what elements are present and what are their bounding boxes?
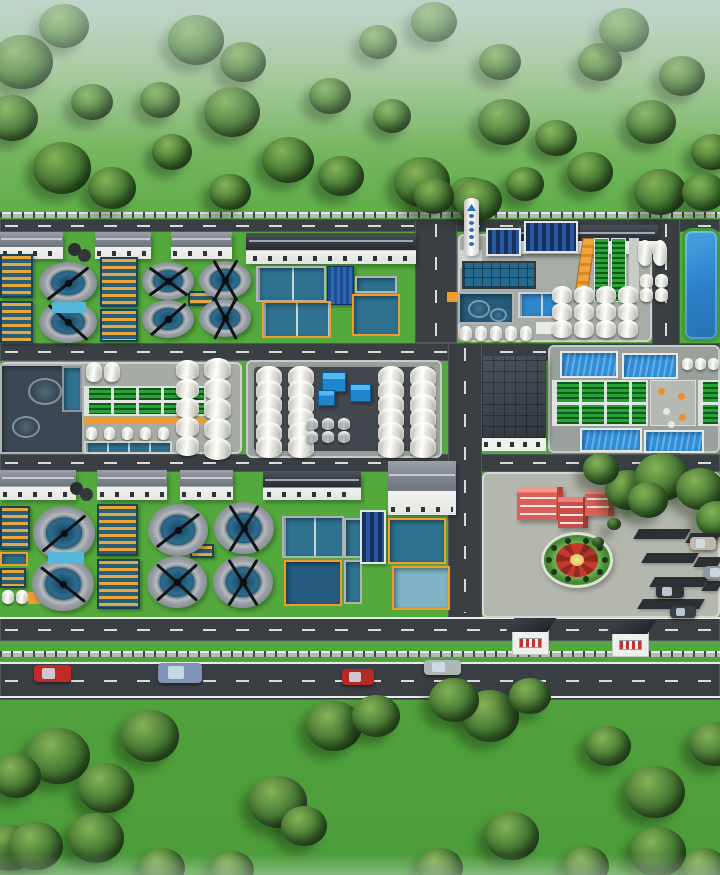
parked-car bbox=[690, 537, 716, 550]
tree bbox=[585, 726, 631, 766]
tree bbox=[39, 4, 89, 48]
structure bbox=[78, 249, 91, 262]
tree bbox=[628, 482, 668, 517]
storage-tank bbox=[410, 436, 436, 458]
storage-tank bbox=[204, 378, 231, 400]
parking-strip bbox=[633, 529, 691, 539]
tank-connector-channel bbox=[48, 552, 84, 564]
storage-tank bbox=[695, 358, 706, 370]
water-basin bbox=[0, 552, 28, 566]
parked-car bbox=[656, 585, 684, 598]
tree bbox=[210, 851, 254, 875]
storage-tank bbox=[655, 288, 668, 302]
tree bbox=[71, 84, 113, 121]
plant-building bbox=[97, 470, 167, 500]
storage-tank bbox=[475, 326, 487, 341]
storage-tank bbox=[204, 358, 231, 380]
clarifier-tank bbox=[142, 300, 194, 338]
clarifier-tank bbox=[147, 556, 207, 608]
gatehouse bbox=[512, 630, 549, 655]
treatment-plant-aerial-scene bbox=[0, 0, 720, 875]
tree bbox=[634, 169, 686, 215]
storage-tank bbox=[158, 427, 169, 440]
road-edge-line bbox=[0, 662, 720, 664]
car bbox=[158, 663, 202, 683]
storage-tank bbox=[638, 240, 652, 266]
tree bbox=[78, 763, 134, 812]
equipment-module bbox=[0, 568, 26, 588]
tree bbox=[414, 178, 454, 213]
tree bbox=[479, 44, 521, 81]
tree bbox=[140, 82, 180, 117]
storage-tank bbox=[176, 417, 199, 437]
plant-building bbox=[246, 233, 416, 264]
storage-tank bbox=[16, 590, 28, 604]
solar-panel-building bbox=[486, 228, 521, 256]
clarifier-tank bbox=[142, 262, 194, 300]
tree bbox=[535, 120, 577, 157]
membrane-basin bbox=[644, 430, 704, 453]
tree bbox=[485, 812, 539, 860]
blue-container bbox=[322, 372, 346, 392]
storage-tank bbox=[490, 326, 502, 341]
tree bbox=[220, 42, 266, 82]
solar-panel-building bbox=[524, 221, 578, 253]
tree bbox=[262, 137, 314, 183]
plant-building bbox=[180, 470, 233, 500]
plant-building bbox=[388, 461, 456, 515]
tree bbox=[506, 167, 544, 200]
storage-tank bbox=[86, 427, 97, 440]
tree bbox=[681, 848, 720, 875]
storage-tank bbox=[640, 274, 653, 288]
storage-tank bbox=[104, 362, 120, 382]
membrane-basin bbox=[580, 428, 642, 452]
parked-car bbox=[670, 606, 696, 618]
tree bbox=[88, 167, 136, 209]
storage-tank bbox=[204, 398, 231, 420]
storage-tank bbox=[596, 303, 616, 321]
parking-strip bbox=[641, 553, 699, 563]
tree bbox=[0, 754, 41, 798]
storage-tank bbox=[505, 326, 517, 341]
equipment-module bbox=[97, 559, 140, 609]
tree bbox=[417, 848, 463, 875]
clarifier-tank bbox=[39, 262, 97, 304]
tree bbox=[567, 152, 613, 192]
storage-tank bbox=[596, 320, 616, 338]
tree bbox=[659, 56, 705, 96]
small-equipment-tank bbox=[306, 418, 318, 430]
tree bbox=[204, 87, 260, 136]
clarifier-tank bbox=[32, 557, 94, 611]
storage-tank bbox=[552, 320, 572, 338]
storage-tank bbox=[552, 303, 572, 321]
blue-container bbox=[350, 384, 371, 402]
storage-tank bbox=[2, 590, 14, 604]
storage-tank bbox=[140, 427, 151, 440]
tree bbox=[281, 806, 327, 846]
storage-tank bbox=[176, 379, 199, 399]
equipment-module bbox=[97, 504, 138, 556]
small-equipment-tank bbox=[338, 431, 350, 443]
small-equipment-tank bbox=[338, 418, 350, 430]
aeration-basin bbox=[458, 292, 514, 324]
water-basin bbox=[392, 566, 450, 610]
blue-equipment-building bbox=[327, 266, 354, 305]
equipment-module bbox=[0, 506, 30, 550]
storage-tank bbox=[574, 286, 594, 304]
water-basin bbox=[352, 294, 400, 336]
equipment-module bbox=[0, 254, 33, 298]
effluent-pond bbox=[682, 228, 720, 342]
storage-tank bbox=[176, 436, 199, 456]
storage-tank bbox=[708, 358, 719, 370]
tree bbox=[359, 25, 397, 58]
tree bbox=[209, 174, 251, 211]
water-basin bbox=[282, 516, 344, 558]
process-building-roof bbox=[482, 356, 546, 438]
tree bbox=[68, 813, 124, 862]
tree bbox=[0, 95, 38, 141]
plant-building bbox=[171, 232, 232, 259]
storage-tank bbox=[204, 418, 231, 440]
water-basin bbox=[84, 441, 172, 454]
storage-tank bbox=[682, 358, 693, 370]
tree bbox=[509, 678, 551, 715]
storage-tank bbox=[122, 427, 133, 440]
process-building-wall bbox=[482, 438, 546, 451]
tree bbox=[599, 8, 649, 52]
storage-tank bbox=[378, 436, 404, 458]
car bbox=[424, 660, 461, 675]
plant-building bbox=[263, 472, 361, 500]
tree bbox=[630, 827, 686, 875]
water-basin bbox=[355, 276, 397, 293]
small-equipment-tank bbox=[306, 431, 318, 443]
machine-platform bbox=[650, 380, 696, 426]
chimney-tower bbox=[464, 198, 479, 256]
tree bbox=[373, 99, 411, 132]
equipment-module bbox=[100, 257, 138, 307]
parked-car bbox=[704, 566, 720, 579]
solar-panel-building bbox=[360, 510, 386, 564]
tree bbox=[689, 722, 720, 766]
admin-building-red bbox=[517, 487, 563, 520]
structure bbox=[80, 488, 93, 501]
tree bbox=[691, 134, 720, 171]
tree bbox=[0, 35, 53, 90]
tree bbox=[478, 99, 530, 145]
equipment-module bbox=[100, 309, 138, 342]
gatehouse bbox=[612, 632, 649, 657]
tree bbox=[625, 766, 685, 819]
clarifier-tank bbox=[213, 556, 273, 608]
water-basin bbox=[284, 560, 342, 606]
tree bbox=[139, 848, 185, 875]
tank-connector-channel bbox=[52, 302, 86, 313]
equipment-module bbox=[0, 301, 33, 343]
storage-tank bbox=[256, 436, 282, 458]
tree bbox=[429, 678, 479, 722]
admin-building-red bbox=[558, 497, 588, 528]
perimeter-fence bbox=[0, 212, 720, 218]
tree bbox=[309, 78, 351, 115]
tree bbox=[121, 710, 179, 761]
tree bbox=[607, 518, 621, 530]
small-equipment-tank bbox=[322, 418, 334, 430]
storage-tank bbox=[618, 286, 638, 304]
tree bbox=[411, 2, 457, 42]
bio-rack-array bbox=[552, 380, 648, 426]
storage-tank bbox=[204, 438, 231, 460]
vert-road-upper bbox=[415, 219, 457, 343]
tree bbox=[318, 156, 364, 196]
storage-tank bbox=[104, 427, 115, 440]
storage-tank bbox=[618, 303, 638, 321]
water-basin bbox=[388, 518, 446, 564]
storage-tank bbox=[552, 286, 572, 304]
tree bbox=[352, 695, 400, 737]
water-basin bbox=[256, 266, 326, 302]
storage-tank bbox=[596, 286, 616, 304]
tree bbox=[626, 100, 676, 144]
water-basin bbox=[262, 301, 331, 338]
clarifier-tank bbox=[199, 299, 251, 337]
plant-building bbox=[95, 232, 151, 259]
storage-tank bbox=[618, 320, 638, 338]
clarifier-tank bbox=[214, 502, 274, 554]
storage-tank bbox=[460, 326, 472, 341]
storage-tank bbox=[574, 320, 594, 338]
storage-tank bbox=[176, 398, 199, 418]
tree bbox=[9, 822, 63, 870]
plant-building bbox=[0, 470, 76, 500]
storage-tank bbox=[520, 326, 532, 341]
bio-rack-array bbox=[698, 380, 720, 426]
tree bbox=[33, 142, 91, 193]
storage-tank bbox=[86, 362, 102, 382]
water-basin bbox=[344, 560, 362, 604]
storage-tank bbox=[176, 360, 199, 380]
car bbox=[34, 665, 71, 682]
clarifier-tank bbox=[199, 261, 251, 299]
water-basin bbox=[62, 366, 82, 412]
covered-glass-basin bbox=[462, 261, 536, 289]
tree bbox=[563, 846, 609, 875]
storage-tank bbox=[653, 240, 667, 266]
membrane-basin bbox=[622, 353, 678, 379]
road-edge-line bbox=[0, 696, 720, 698]
storage-tank bbox=[655, 274, 668, 288]
tree bbox=[168, 15, 224, 64]
tree bbox=[583, 453, 619, 485]
tree bbox=[152, 134, 192, 169]
car bbox=[342, 669, 374, 685]
storage-tank bbox=[574, 303, 594, 321]
small-equipment-tank bbox=[322, 431, 334, 443]
tree bbox=[682, 173, 720, 212]
membrane-basin bbox=[560, 351, 618, 378]
clarifier-tank bbox=[148, 504, 208, 556]
storage-tank bbox=[640, 288, 653, 302]
blue-container bbox=[318, 390, 335, 406]
